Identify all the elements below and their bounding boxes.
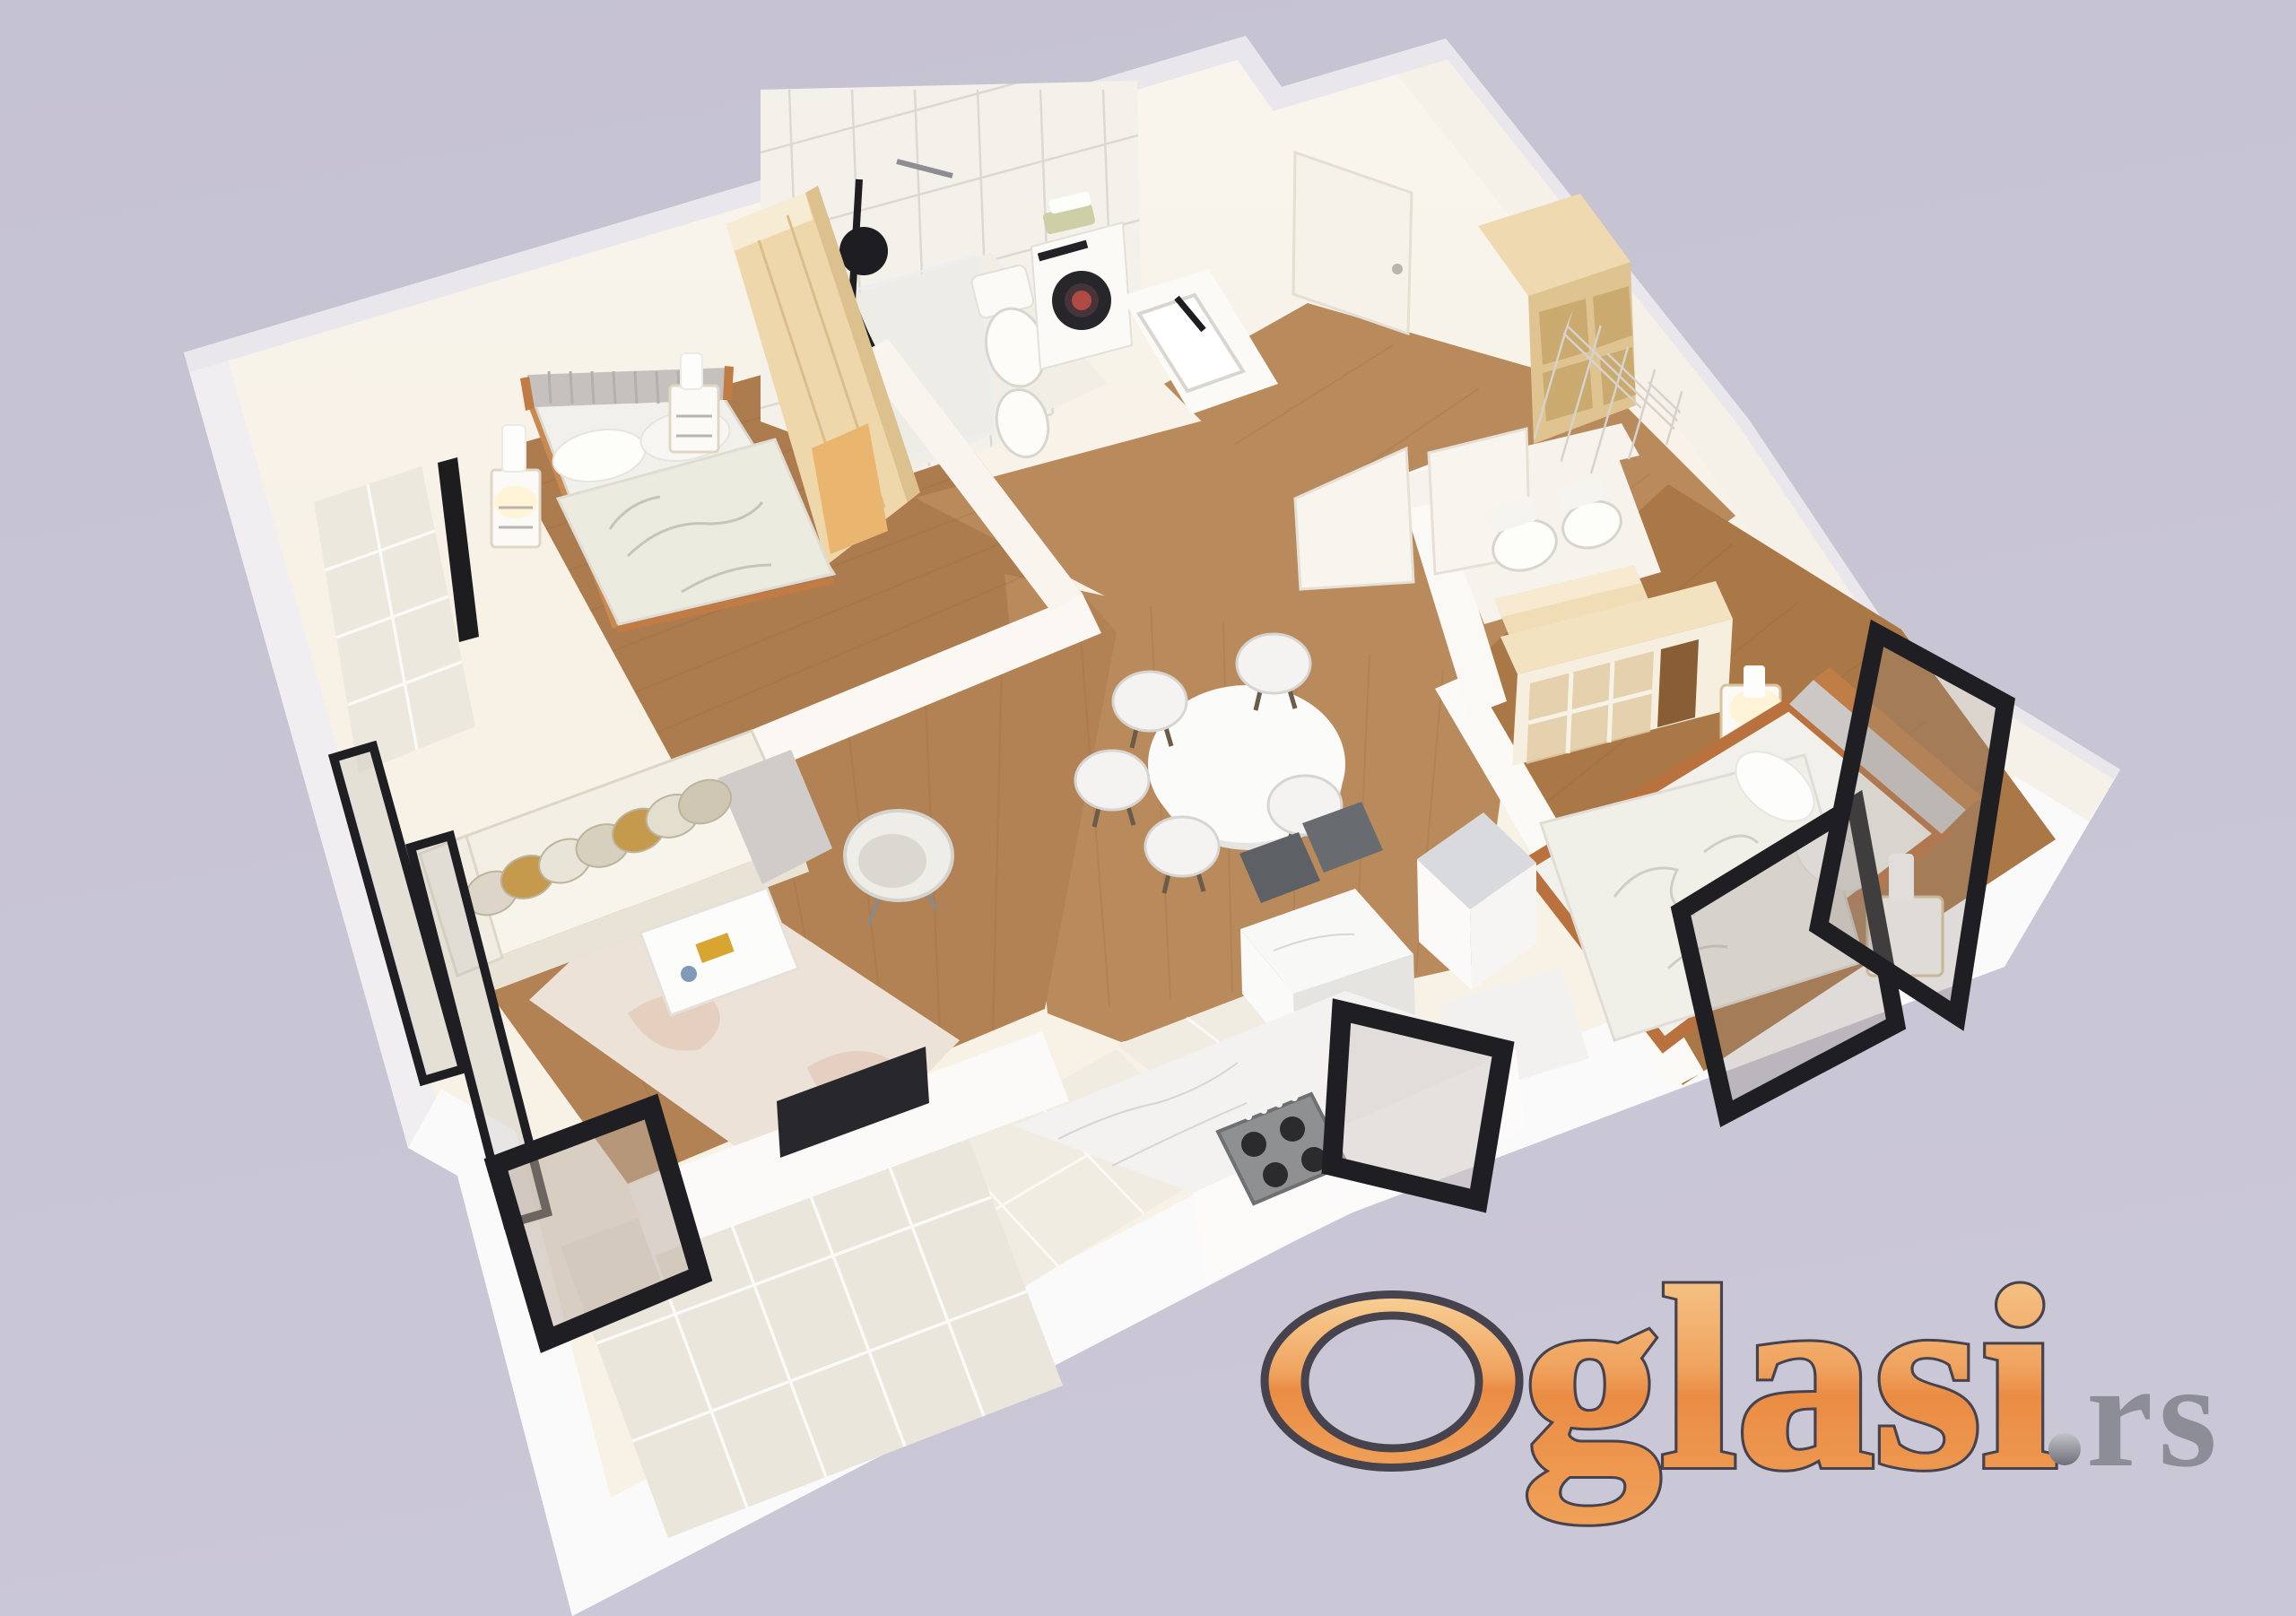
svg-text:glasi: glasi [1523,1236,2057,1526]
svg-text:rs: rs [2086,1332,2222,1499]
